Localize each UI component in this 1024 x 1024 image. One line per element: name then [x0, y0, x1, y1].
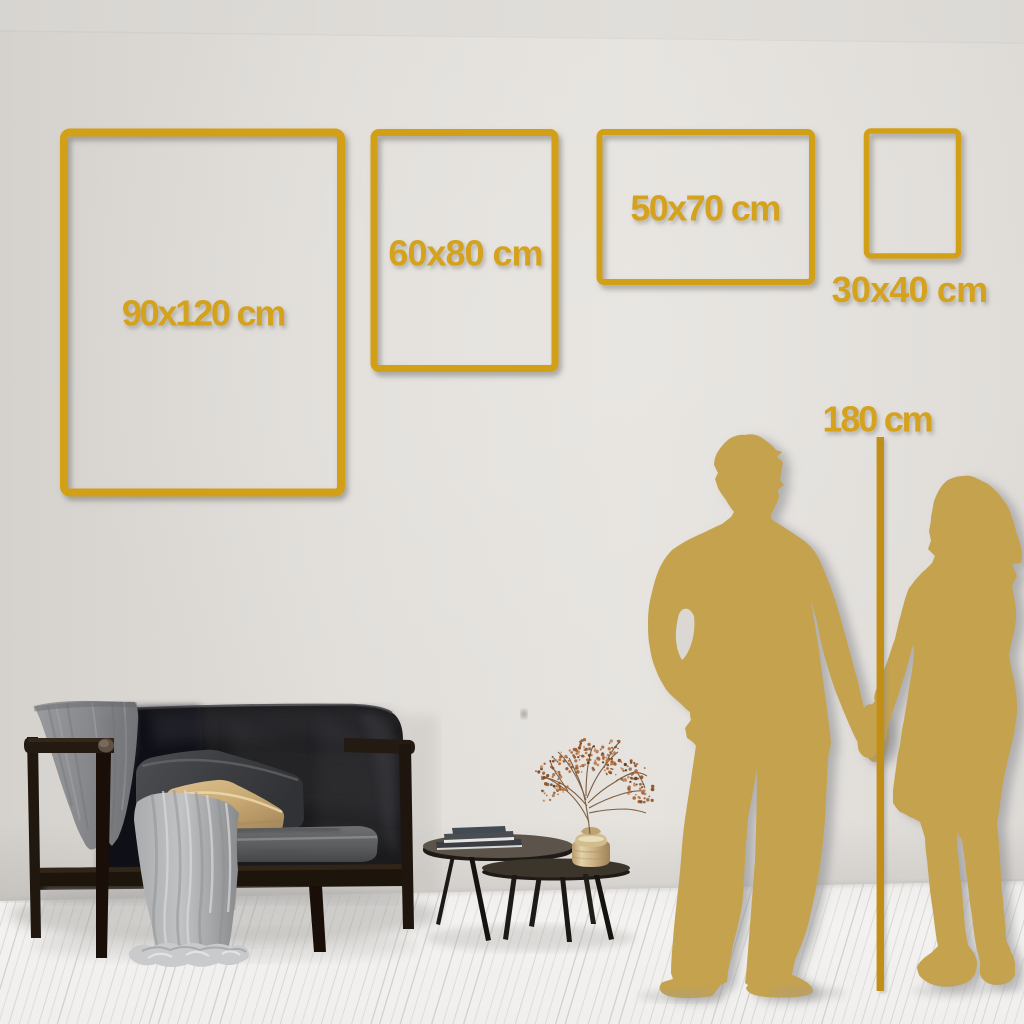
svg-text:180 cm: 180 cm [823, 399, 932, 440]
svg-text:30x40 cm: 30x40 cm [832, 269, 988, 310]
svg-text:90x120 cm: 90x120 cm [122, 293, 285, 334]
svg-text:60x80 cm: 60x80 cm [388, 233, 542, 274]
svg-text:50x70 cm: 50x70 cm [630, 188, 779, 229]
